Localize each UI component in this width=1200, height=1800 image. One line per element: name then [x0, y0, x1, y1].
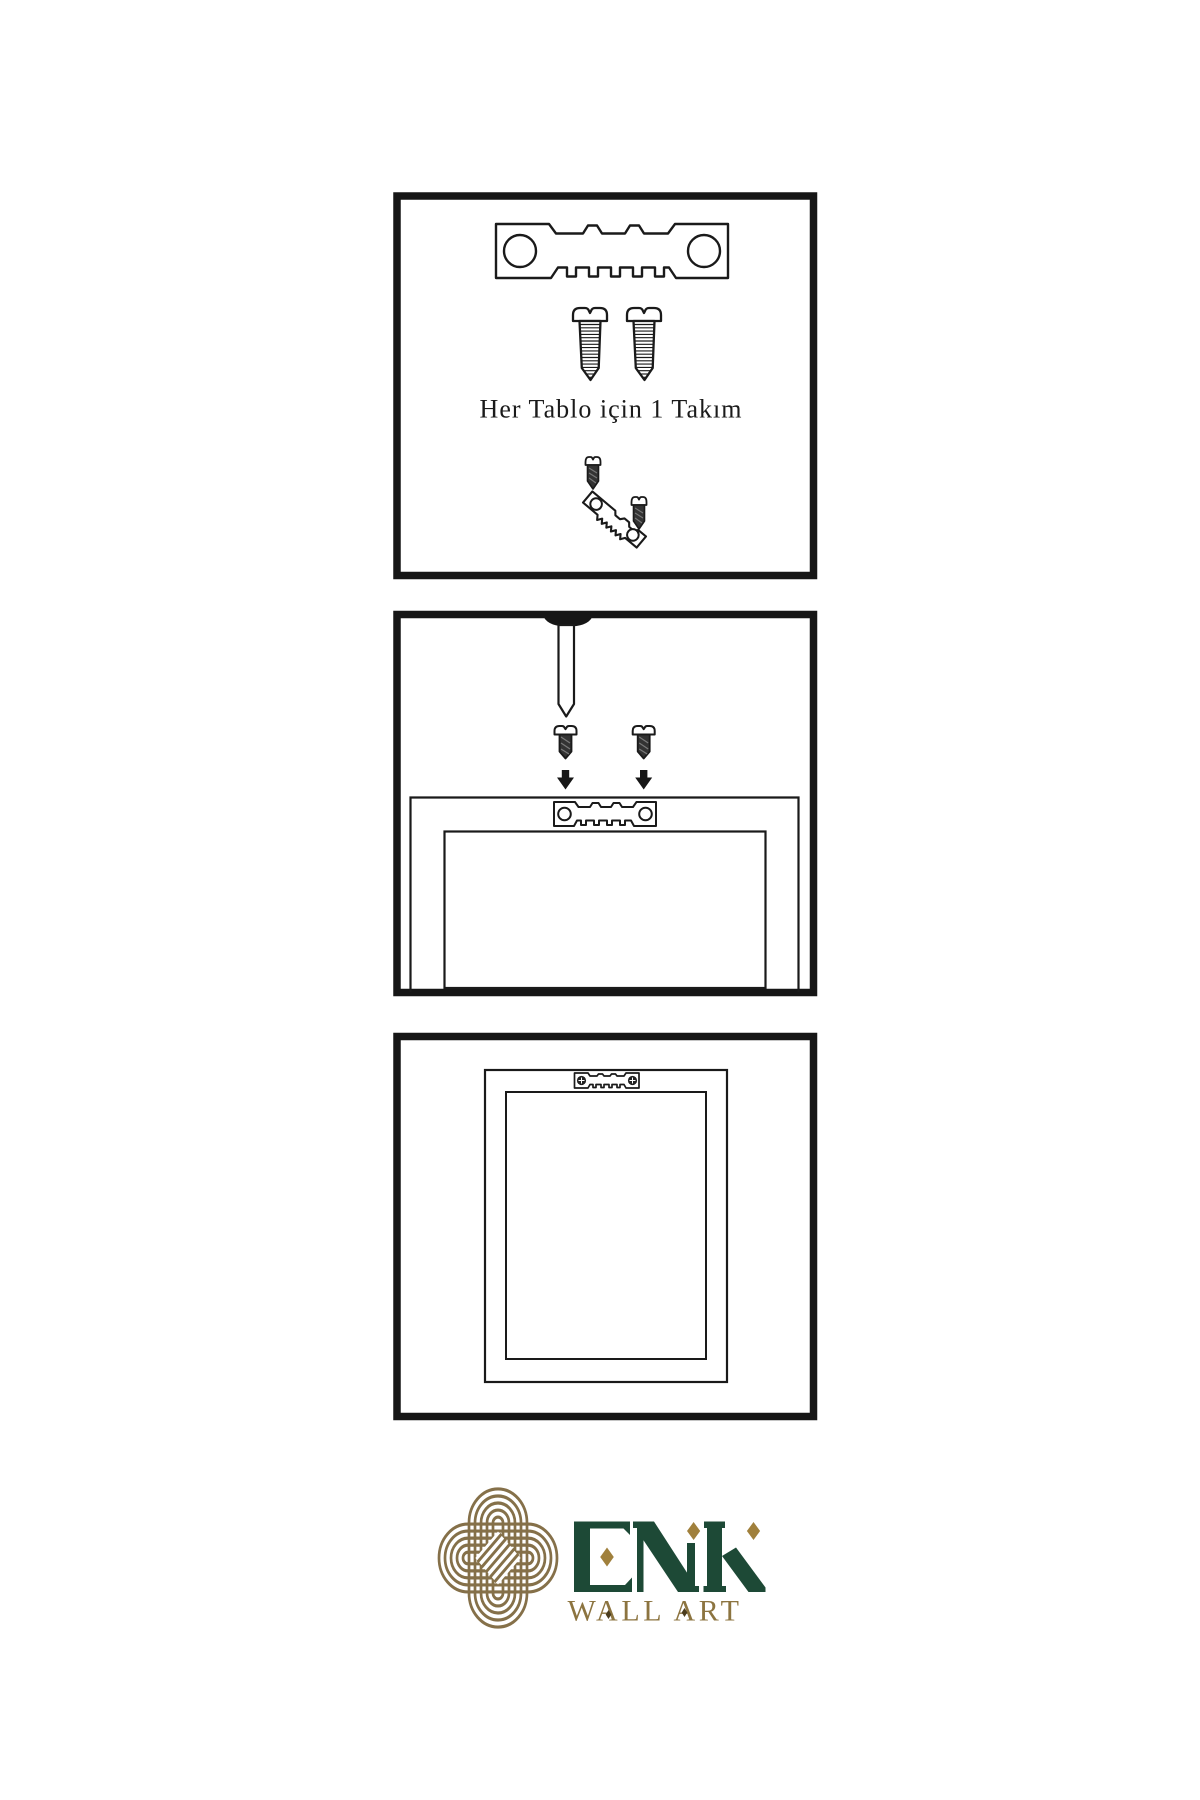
- svg-text:WALL ART: WALL ART: [567, 1595, 742, 1628]
- svg-text:Her Tablo için 1 Takım: Her Tablo için 1 Takım: [480, 395, 743, 424]
